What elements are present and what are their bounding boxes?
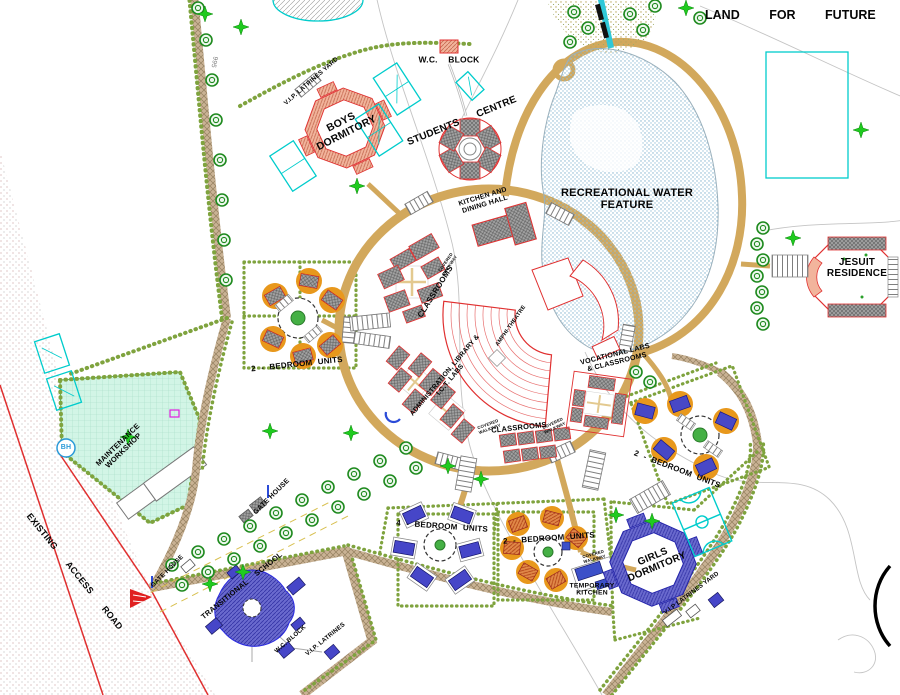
house bbox=[540, 564, 573, 597]
site-plan-drawing bbox=[0, 0, 900, 695]
classrooms-northwest bbox=[378, 234, 446, 323]
label-land-for-future: LAND FOR FUTURE DE bbox=[705, 8, 900, 22]
wc-block-top-building bbox=[440, 40, 458, 53]
label-temporary-kitchen: TEMPORARY KITCHEN bbox=[570, 583, 615, 598]
house bbox=[391, 537, 418, 559]
future-field-rect bbox=[766, 52, 848, 178]
house bbox=[629, 395, 661, 427]
kitchen-dining-building bbox=[470, 202, 536, 255]
label-jesuit-residence: JESUIT RESIDENCE bbox=[827, 257, 887, 279]
label-recreational-water: RECREATIONAL WATER FEATURE bbox=[561, 187, 693, 211]
fountain-symbol bbox=[386, 412, 400, 422]
edge-clipped-arc-glyph bbox=[875, 566, 890, 646]
site-plan-canvas: LAND FOR FUTURE DE W.C. BLOCK V.I.P. LAT… bbox=[0, 0, 900, 695]
house bbox=[456, 538, 484, 562]
vocational-cluster bbox=[566, 371, 632, 437]
house bbox=[445, 566, 475, 595]
pond-oval bbox=[273, 0, 363, 21]
house bbox=[537, 503, 566, 532]
house bbox=[294, 266, 324, 296]
label-wc-block-top: W.C. BLOCK bbox=[419, 55, 480, 64]
label-borehole: BH bbox=[61, 444, 72, 452]
bedroom4-cluster bbox=[391, 502, 484, 594]
